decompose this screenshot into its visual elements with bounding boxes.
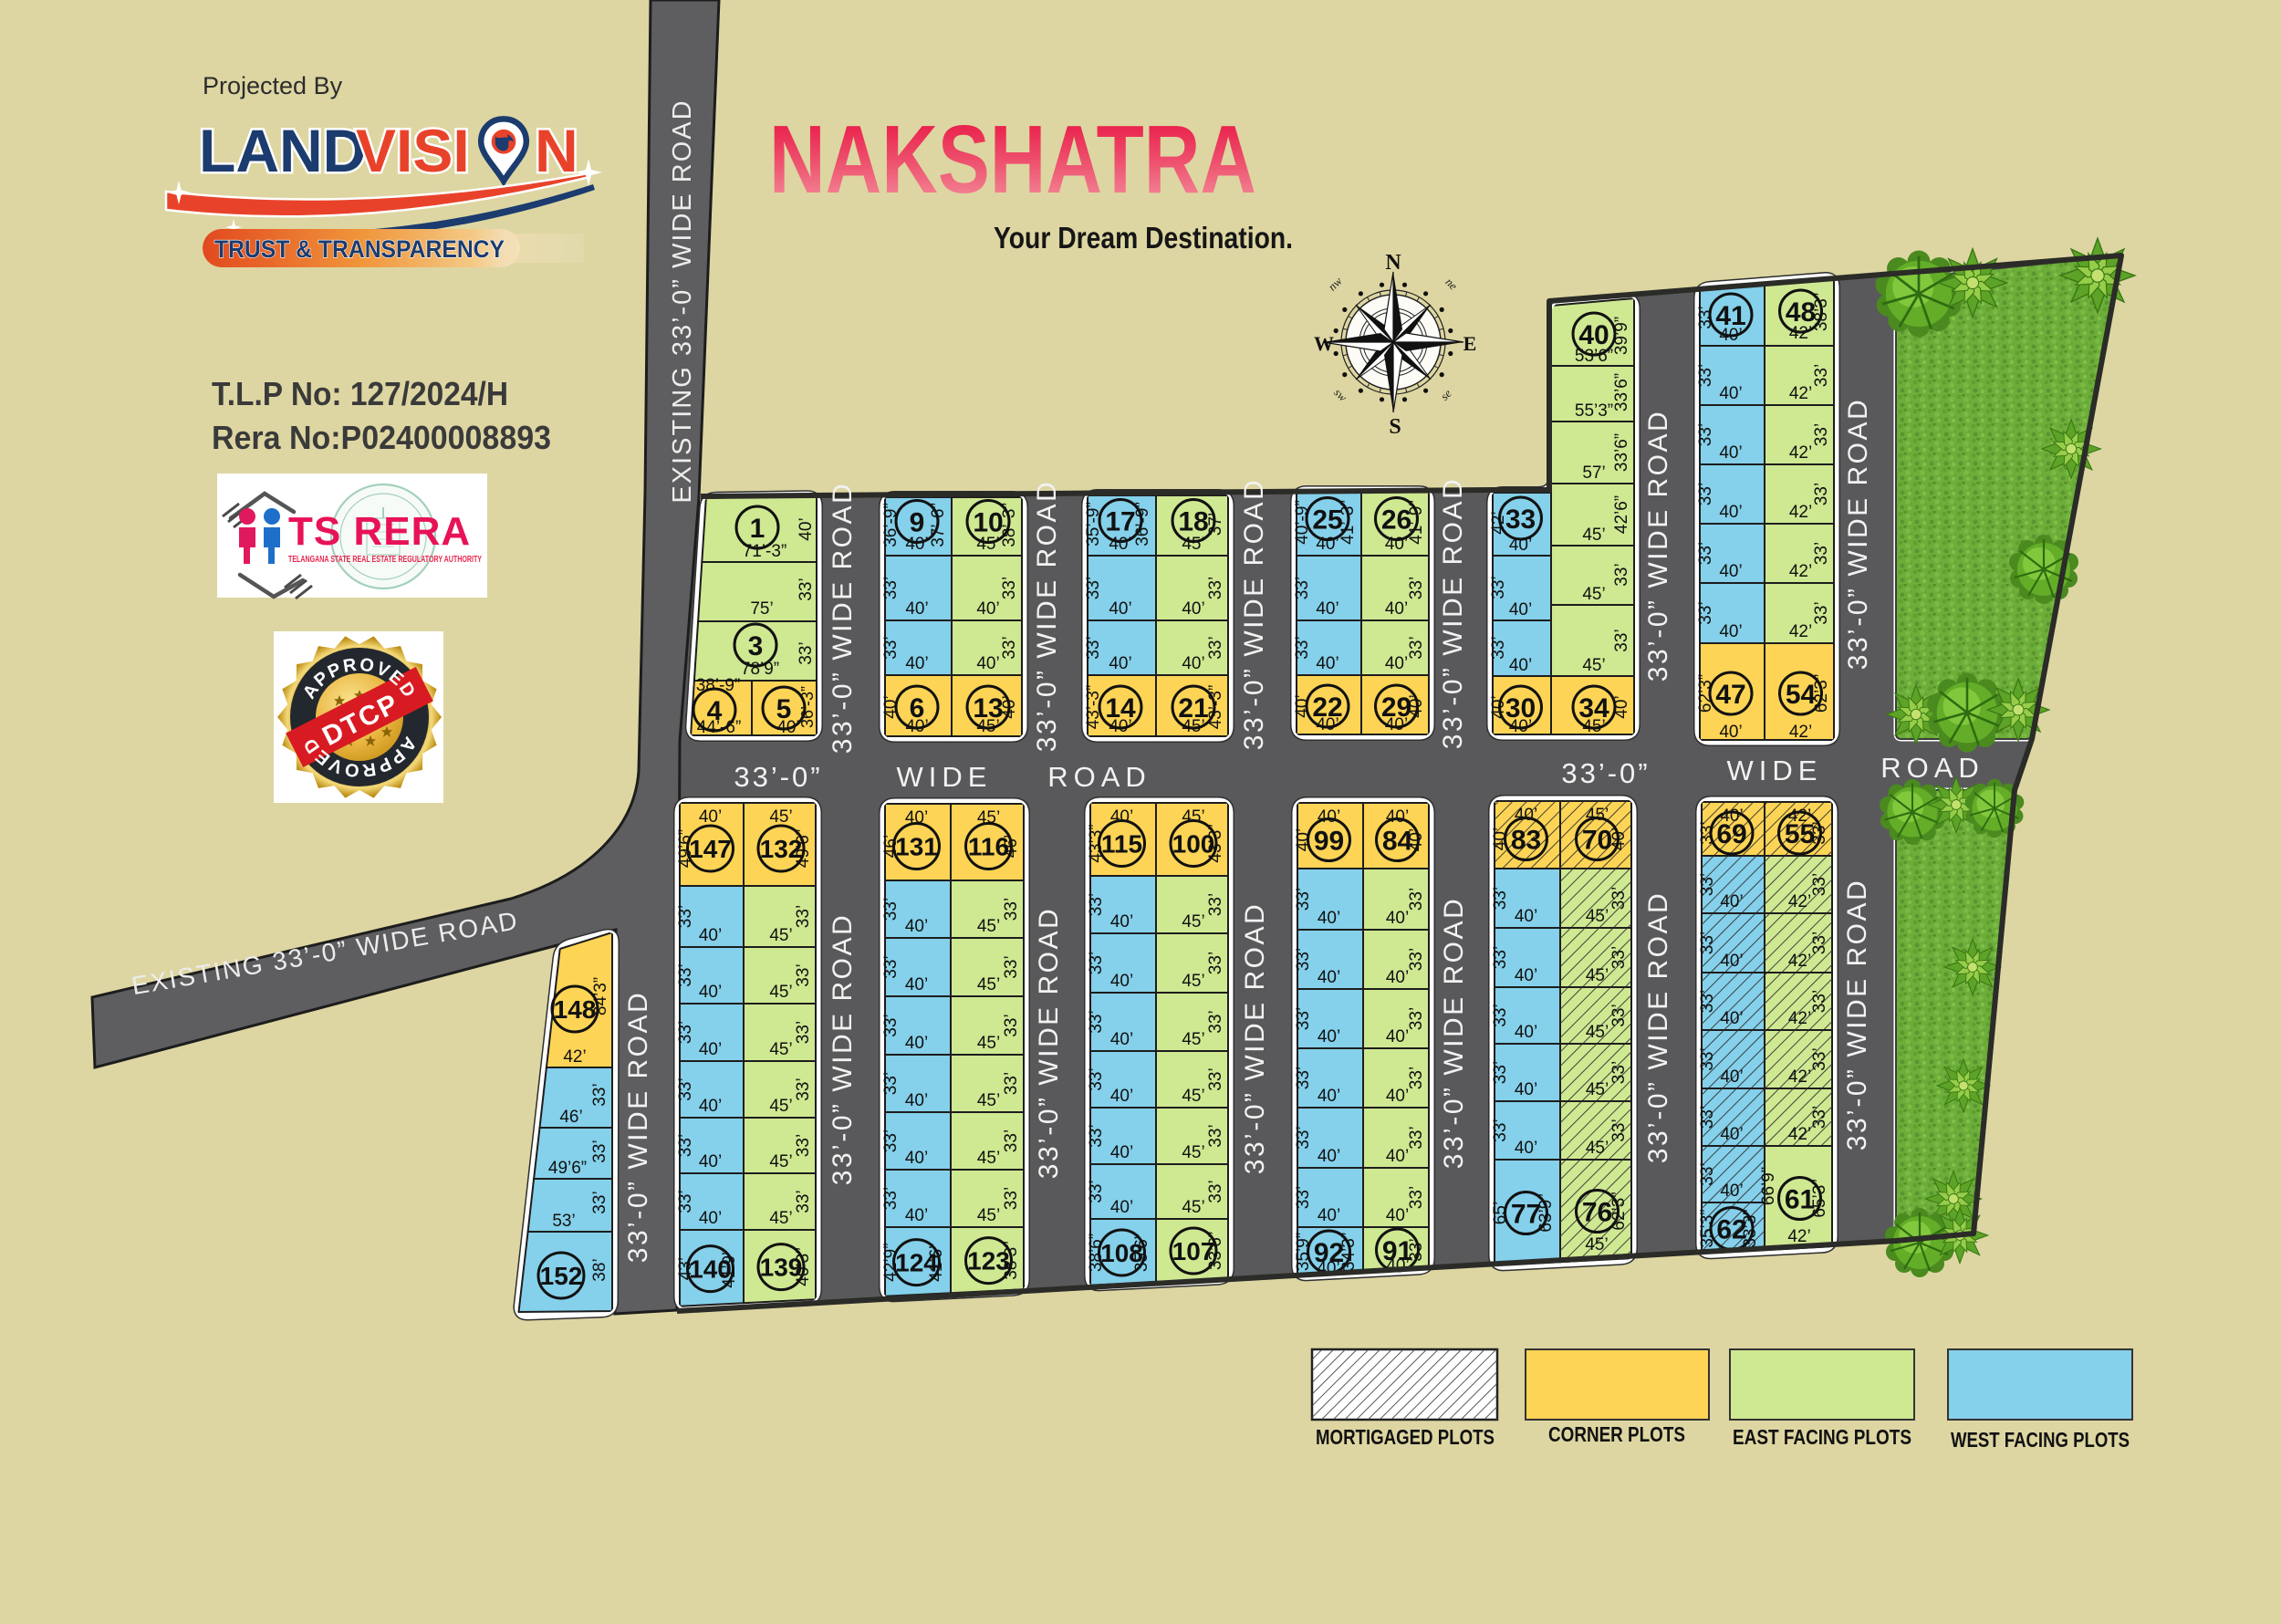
svg-text:45’: 45’ xyxy=(1182,1198,1204,1217)
svg-text:E: E xyxy=(1463,332,1477,355)
svg-text:40’: 40’ xyxy=(1515,1139,1537,1158)
svg-text:40’: 40’ xyxy=(1719,723,1742,742)
svg-text:49’6”: 49’6” xyxy=(548,1159,587,1178)
svg-text:40’: 40’ xyxy=(1110,1087,1133,1106)
svg-text:45’: 45’ xyxy=(1582,585,1605,604)
svg-text:33’: 33’ xyxy=(1698,1106,1717,1129)
svg-text:33’: 33’ xyxy=(590,1191,609,1213)
svg-text:45’: 45’ xyxy=(1586,1080,1609,1099)
svg-text:40’: 40’ xyxy=(699,983,722,1002)
svg-text:18: 18 xyxy=(1178,506,1208,536)
svg-text:39’9”: 39’9” xyxy=(1612,317,1631,355)
svg-text:33’: 33’ xyxy=(1812,364,1831,387)
svg-text:33’: 33’ xyxy=(1696,483,1715,505)
svg-text:33’: 33’ xyxy=(676,1190,695,1213)
svg-text:33’: 33’ xyxy=(1206,1180,1225,1202)
svg-text:84’3”: 84’3” xyxy=(591,977,610,1015)
svg-text:40’: 40’ xyxy=(1720,1125,1743,1144)
svg-text:45’: 45’ xyxy=(769,1209,792,1228)
svg-text:40’: 40’ xyxy=(797,517,816,540)
svg-text:40’: 40’ xyxy=(1110,1198,1133,1217)
svg-text:33’: 33’ xyxy=(1696,423,1715,446)
svg-text:33’: 33’ xyxy=(1489,576,1508,599)
svg-text:1: 1 xyxy=(750,514,766,544)
svg-text:TRUST & TRANSPARENCY: TRUST & TRANSPARENCY xyxy=(214,235,505,263)
svg-text:40’: 40’ xyxy=(1316,535,1338,554)
svg-text:40’: 40’ xyxy=(1110,1143,1133,1162)
svg-text:55’3”: 55’3” xyxy=(1575,401,1613,421)
svg-text:49’6”: 49’6” xyxy=(794,829,813,868)
svg-text:VISI: VISI xyxy=(356,117,470,184)
svg-text:33’: 33’ xyxy=(797,578,816,600)
svg-text:40’: 40’ xyxy=(905,1091,928,1110)
svg-text:33’: 33’ xyxy=(1609,1061,1629,1084)
svg-text:33’-0”: 33’-0” xyxy=(734,761,822,793)
svg-text:33’: 33’ xyxy=(1087,893,1106,916)
svg-text:40’: 40’ xyxy=(1318,1087,1340,1106)
svg-text:40’: 40’ xyxy=(1719,622,1742,641)
svg-text:TELANGANA STATE REAL ESTATE RE: TELANGANA STATE REAL ESTATE REGULATORY A… xyxy=(288,555,482,565)
svg-text:44’-6”: 44’-6” xyxy=(697,718,742,737)
svg-text:40’: 40’ xyxy=(1509,536,1532,555)
svg-text:33’-0” WIDE ROAD: 33’-0” WIDE ROAD xyxy=(1239,478,1269,750)
svg-text:S: S xyxy=(1389,415,1401,439)
svg-text:40’: 40’ xyxy=(1318,807,1340,827)
svg-text:45’: 45’ xyxy=(1182,535,1204,554)
svg-text:45’: 45’ xyxy=(769,807,792,827)
svg-text:40’: 40’ xyxy=(699,926,722,945)
svg-text:33’: 33’ xyxy=(1812,601,1831,624)
svg-text:42’: 42’ xyxy=(1788,1067,1811,1087)
svg-text:33’: 33’ xyxy=(1609,1004,1629,1026)
svg-text:33’: 33’ xyxy=(1087,1124,1106,1147)
svg-text:40’: 40’ xyxy=(1316,599,1338,619)
svg-text:ROAD: ROAD xyxy=(1880,752,1984,784)
svg-text:33’: 33’ xyxy=(1206,893,1225,916)
svg-text:40’: 40’ xyxy=(1491,828,1510,850)
svg-text:33’: 33’ xyxy=(1087,1010,1106,1033)
svg-text:40’: 40’ xyxy=(1318,1027,1340,1046)
svg-text:40’: 40’ xyxy=(1407,694,1426,717)
svg-text:40’: 40’ xyxy=(1515,907,1537,926)
svg-text:40’: 40’ xyxy=(905,599,928,619)
svg-text:36’-9”: 36’-9” xyxy=(881,503,901,547)
svg-text:83: 83 xyxy=(1511,825,1541,855)
svg-text:EAST FACING PLOTS: EAST FACING PLOTS xyxy=(1733,1425,1911,1449)
svg-text:33’: 33’ xyxy=(1294,1007,1313,1030)
svg-text:38’3”: 38’3” xyxy=(1002,1241,1021,1279)
svg-text:42’: 42’ xyxy=(1789,384,1812,403)
svg-text:62’3”: 62’3” xyxy=(1696,674,1715,713)
svg-text:CORNER PLOTS: CORNER PLOTS xyxy=(1548,1422,1685,1446)
svg-text:36’-3”: 36’-3” xyxy=(798,686,817,728)
svg-text:WEST FACING PLOTS: WEST FACING PLOTS xyxy=(1951,1428,2130,1452)
svg-text:40’: 40’ xyxy=(1489,695,1508,718)
svg-text:33’: 33’ xyxy=(676,1021,695,1044)
svg-text:N: N xyxy=(1385,251,1401,275)
svg-text:69: 69 xyxy=(1716,819,1746,849)
svg-text:33’: 33’ xyxy=(590,1140,609,1162)
svg-text:40’: 40’ xyxy=(1293,694,1312,717)
svg-text:33’: 33’ xyxy=(1609,946,1629,969)
svg-text:40’: 40’ xyxy=(699,1040,722,1059)
svg-text:42’: 42’ xyxy=(1789,443,1812,463)
svg-text:33’: 33’ xyxy=(1407,1126,1426,1149)
svg-text:40’: 40’ xyxy=(1385,654,1408,673)
svg-text:33’: 33’ xyxy=(1491,887,1510,910)
svg-text:33’: 33’ xyxy=(1491,1119,1510,1141)
svg-text:45’: 45’ xyxy=(1182,972,1204,991)
svg-text:33’: 33’ xyxy=(1698,873,1717,896)
svg-text:78’9”: 78’9” xyxy=(741,660,779,679)
svg-text:40’: 40’ xyxy=(1515,806,1537,825)
svg-text:33’: 33’ xyxy=(881,1187,901,1210)
svg-text:33’: 33’ xyxy=(1002,1130,1021,1152)
svg-text:33’: 33’ xyxy=(1293,577,1312,599)
svg-text:33’: 33’ xyxy=(1087,1180,1106,1202)
svg-text:33’: 33’ xyxy=(1002,898,1021,921)
svg-text:45’: 45’ xyxy=(769,1040,792,1059)
svg-text:40’: 40’ xyxy=(1720,1009,1743,1028)
svg-text:45’: 45’ xyxy=(1586,966,1609,985)
svg-text:40’: 40’ xyxy=(1385,715,1408,734)
svg-text:NAKSHATRA: NAKSHATRA xyxy=(769,106,1256,213)
svg-text:33: 33 xyxy=(1505,505,1536,535)
svg-text:42’: 42’ xyxy=(1789,723,1812,742)
svg-text:38’-3”: 38’-3” xyxy=(1000,503,1019,547)
svg-text:40’: 40’ xyxy=(905,1034,928,1053)
svg-text:33’: 33’ xyxy=(1810,990,1829,1013)
svg-text:45’: 45’ xyxy=(1586,1139,1609,1158)
svg-text:147: 147 xyxy=(689,835,732,863)
svg-text:45’: 45’ xyxy=(977,1091,1000,1110)
svg-text:33’: 33’ xyxy=(1407,636,1426,659)
svg-text:33’-0” WIDE ROAD: 33’-0” WIDE ROAD xyxy=(1439,897,1469,1169)
svg-text:33’: 33’ xyxy=(881,636,901,659)
svg-text:40’: 40’ xyxy=(1719,443,1742,463)
svg-text:40’: 40’ xyxy=(1109,717,1131,736)
svg-text:33’: 33’ xyxy=(881,1014,901,1036)
svg-text:33’: 33’ xyxy=(794,1134,813,1157)
svg-text:40’: 40’ xyxy=(1509,717,1532,736)
svg-text:40’: 40’ xyxy=(905,535,928,554)
svg-text:40’: 40’ xyxy=(1109,535,1131,554)
svg-text:33’: 33’ xyxy=(1407,577,1426,599)
svg-text:33’: 33’ xyxy=(1000,636,1019,659)
svg-text:40’: 40’ xyxy=(1720,892,1743,911)
svg-text:38’6”: 38’6” xyxy=(1087,1234,1106,1272)
svg-text:33’: 33’ xyxy=(1810,1106,1829,1129)
svg-text:40’: 40’ xyxy=(1385,599,1408,619)
svg-text:43’: 43’ xyxy=(676,1257,695,1280)
svg-text:T.L.P No: 127/2024/H: T.L.P No: 127/2024/H xyxy=(212,375,508,412)
svg-text:33’: 33’ xyxy=(794,1190,813,1213)
svg-text:40’: 40’ xyxy=(1720,1182,1743,1201)
svg-text:Projected By: Projected By xyxy=(203,72,343,99)
svg-text:40’: 40’ xyxy=(1109,654,1131,673)
svg-text:10: 10 xyxy=(973,507,1003,537)
svg-text:40’: 40’ xyxy=(1386,1147,1409,1166)
svg-text:152: 152 xyxy=(540,1262,583,1290)
svg-text:40’: 40’ xyxy=(1182,599,1204,619)
svg-text:40’: 40’ xyxy=(1720,1067,1743,1087)
svg-text:43’-3”: 43’-3” xyxy=(1084,685,1103,730)
svg-text:45’: 45’ xyxy=(976,717,999,736)
svg-text:W: W xyxy=(1314,332,1334,355)
svg-text:33’: 33’ xyxy=(1407,1007,1426,1030)
svg-text:TS RERA: TS RERA xyxy=(288,509,471,554)
svg-text:42’: 42’ xyxy=(1489,511,1508,534)
svg-text:33’-0” WIDE ROAD: 33’-0” WIDE ROAD xyxy=(623,991,653,1263)
svg-text:40’: 40’ xyxy=(1515,966,1537,985)
svg-text:42’: 42’ xyxy=(1788,892,1811,911)
svg-text:45’: 45’ xyxy=(977,1034,1000,1053)
svg-text:40’: 40’ xyxy=(1609,828,1629,850)
svg-text:40’: 40’ xyxy=(1386,909,1409,928)
svg-text:33’: 33’ xyxy=(1491,1061,1510,1084)
svg-text:40’: 40’ xyxy=(1385,535,1408,554)
svg-text:42’: 42’ xyxy=(563,1047,586,1067)
svg-text:40’3”: 40’3” xyxy=(794,1247,813,1286)
svg-text:40’: 40’ xyxy=(1719,384,1742,403)
svg-text:40’: 40’ xyxy=(699,1152,722,1171)
svg-text:33’: 33’ xyxy=(1812,483,1831,505)
svg-text:33’-0” WIDE ROAD: 33’-0” WIDE ROAD xyxy=(1034,907,1064,1179)
svg-text:33’: 33’ xyxy=(676,905,695,928)
svg-text:33’: 33’ xyxy=(1407,1186,1426,1209)
svg-text:33’: 33’ xyxy=(1810,821,1829,844)
svg-text:40’: 40’ xyxy=(1386,1027,1409,1046)
svg-text:33’: 33’ xyxy=(1294,1067,1313,1089)
svg-text:40’: 40’ xyxy=(1316,654,1338,673)
svg-text:33’-0” WIDE ROAD: 33’-0” WIDE ROAD xyxy=(1438,477,1468,749)
svg-text:42’: 42’ xyxy=(1789,503,1812,522)
svg-text:42’: 42’ xyxy=(1788,952,1811,971)
svg-text:35’9”: 35’9” xyxy=(1294,1233,1313,1271)
svg-text:40’: 40’ xyxy=(699,1209,722,1228)
svg-text:45’: 45’ xyxy=(1182,912,1204,932)
svg-text:40’: 40’ xyxy=(905,654,928,673)
svg-text:33’: 33’ xyxy=(1696,542,1715,565)
svg-text:45’: 45’ xyxy=(977,917,1000,936)
svg-text:33’: 33’ xyxy=(1294,888,1313,911)
svg-text:Your Dream Destination.: Your Dream Destination. xyxy=(994,221,1293,255)
svg-text:40’: 40’ xyxy=(1509,656,1532,675)
svg-text:33’-0” WIDE ROAD: 33’-0” WIDE ROAD xyxy=(828,482,858,754)
svg-text:33’: 33’ xyxy=(881,955,901,978)
svg-text:33’: 33’ xyxy=(1612,563,1631,586)
svg-text:57’: 57’ xyxy=(1582,463,1605,483)
svg-text:38’-9”: 38’-9” xyxy=(696,676,741,695)
svg-text:148: 148 xyxy=(554,995,597,1024)
svg-text:33’: 33’ xyxy=(1696,306,1715,328)
svg-text:45’: 45’ xyxy=(769,983,792,1002)
svg-text:33’: 33’ xyxy=(1696,601,1715,624)
svg-text:45’: 45’ xyxy=(1182,1087,1204,1106)
svg-text:33’-0” WIDE ROAD: 33’-0” WIDE ROAD xyxy=(828,913,858,1185)
svg-text:33’: 33’ xyxy=(1812,423,1831,446)
svg-text:46’: 46’ xyxy=(1002,835,1021,858)
svg-text:41’-9”: 41’-9” xyxy=(1407,500,1426,545)
svg-text:40’-9”: 40’-9” xyxy=(1293,500,1312,545)
svg-text:42’: 42’ xyxy=(1788,1125,1811,1144)
svg-text:33’: 33’ xyxy=(1491,1004,1510,1026)
svg-text:33’3”: 33’3” xyxy=(1741,1209,1760,1247)
svg-text:40: 40 xyxy=(1578,320,1609,350)
svg-text:45’: 45’ xyxy=(977,1149,1000,1168)
svg-text:43’-3”: 43’-3” xyxy=(1206,685,1225,730)
svg-text:43’3”: 43’3” xyxy=(1087,824,1106,862)
svg-text:33’: 33’ xyxy=(1810,1047,1829,1070)
svg-text:33’: 33’ xyxy=(1294,948,1313,971)
svg-text:40’: 40’ xyxy=(976,654,999,673)
svg-text:66’9”: 66’9” xyxy=(1759,1167,1778,1205)
svg-text:37’-6”: 37’-6” xyxy=(929,503,948,547)
svg-text:42’: 42’ xyxy=(1789,622,1812,641)
svg-text:40’: 40’ xyxy=(1110,1030,1133,1049)
svg-text:33’: 33’ xyxy=(1002,955,1021,978)
svg-text:45’: 45’ xyxy=(1586,1023,1609,1042)
svg-text:40’: 40’ xyxy=(905,975,928,994)
svg-text:45’: 45’ xyxy=(1582,717,1605,736)
svg-text:33’-0” WIDE ROAD: 33’-0” WIDE ROAD xyxy=(1240,902,1270,1174)
svg-text:33’: 33’ xyxy=(1696,364,1715,387)
svg-text:33’: 33’ xyxy=(1206,1124,1225,1147)
svg-text:63’9”: 63’9” xyxy=(1536,1193,1556,1232)
svg-text:33’-0” WIDE ROAD: 33’-0” WIDE ROAD xyxy=(1643,891,1673,1163)
svg-text:45’: 45’ xyxy=(976,535,999,554)
svg-text:33’: 33’ xyxy=(1609,887,1629,910)
svg-text:62’3”: 62’3” xyxy=(1812,674,1831,713)
svg-text:40’: 40’ xyxy=(905,717,928,736)
svg-text:33’: 33’ xyxy=(1002,1014,1021,1036)
svg-text:33’: 33’ xyxy=(1087,1067,1106,1090)
svg-text:42’: 42’ xyxy=(1789,562,1812,581)
svg-text:99: 99 xyxy=(1314,826,1344,856)
svg-text:33’: 33’ xyxy=(794,905,813,928)
svg-text:45’: 45’ xyxy=(769,1152,792,1171)
svg-text:40’: 40’ xyxy=(1000,695,1019,718)
svg-text:33’: 33’ xyxy=(590,1083,609,1106)
svg-text:40’: 40’ xyxy=(1110,912,1133,932)
svg-text:45’: 45’ xyxy=(769,1097,792,1116)
svg-text:33’: 33’ xyxy=(794,1021,813,1044)
svg-text:33’: 33’ xyxy=(1206,577,1225,599)
svg-text:45’: 45’ xyxy=(1585,1235,1608,1254)
svg-text:33’: 33’ xyxy=(1002,1187,1021,1210)
svg-text:65’3”: 65’3” xyxy=(1810,1179,1829,1217)
svg-text:33’: 33’ xyxy=(881,1072,901,1095)
svg-text:33’6”: 33’6” xyxy=(1612,433,1631,472)
svg-text:45’: 45’ xyxy=(1182,807,1204,827)
svg-text:70: 70 xyxy=(1582,825,1612,855)
svg-text:33’: 33’ xyxy=(1087,952,1106,974)
svg-text:WIDE: WIDE xyxy=(1727,755,1823,786)
svg-text:40’: 40’ xyxy=(699,1097,722,1116)
svg-text:40’: 40’ xyxy=(1109,599,1131,619)
svg-text:45’: 45’ xyxy=(1586,907,1609,926)
svg-text:33’: 33’ xyxy=(1002,1072,1021,1095)
svg-text:33’6”: 33’6” xyxy=(1612,373,1631,411)
svg-text:33’: 33’ xyxy=(1206,952,1225,974)
svg-text:33’: 33’ xyxy=(1084,636,1103,659)
svg-text:33’: 33’ xyxy=(881,898,901,921)
svg-text:33’: 33’ xyxy=(1810,873,1829,896)
svg-text:33’: 33’ xyxy=(794,1077,813,1100)
svg-text:ROAD: ROAD xyxy=(1047,761,1151,793)
svg-text:MORTIGAGED PLOTS: MORTIGAGED PLOTS xyxy=(1316,1425,1495,1449)
svg-text:33’: 33’ xyxy=(676,963,695,986)
svg-text:33’: 33’ xyxy=(1698,932,1717,954)
svg-text:33’-0” WIDE ROAD: 33’-0” WIDE ROAD xyxy=(1843,398,1873,670)
svg-text:38’: 38’ xyxy=(590,1258,609,1281)
svg-text:33’: 33’ xyxy=(1206,1067,1225,1090)
svg-text:33’: 33’ xyxy=(1293,636,1312,659)
svg-text:46’: 46’ xyxy=(559,1108,582,1127)
svg-text:65’: 65’ xyxy=(1491,1202,1510,1224)
svg-text:3: 3 xyxy=(748,631,764,661)
svg-text:WIDE: WIDE xyxy=(897,761,993,793)
svg-text:37’: 37’ xyxy=(1206,513,1225,536)
svg-text:45’: 45’ xyxy=(1582,656,1605,675)
svg-text:Rera No:P02400008893: Rera No:P02400008893 xyxy=(212,419,551,456)
svg-text:45’: 45’ xyxy=(977,975,1000,994)
svg-text:33’: 33’ xyxy=(881,577,901,599)
svg-text:EXISTING 33’-0” WIDE ROAD: EXISTING 33’-0” WIDE ROAD xyxy=(668,99,697,503)
svg-text:33’: 33’ xyxy=(1407,1067,1426,1089)
svg-text:33’: 33’ xyxy=(1698,1162,1717,1185)
svg-text:40’: 40’ xyxy=(1110,807,1133,827)
svg-text:33’: 33’ xyxy=(676,1077,695,1100)
svg-text:33’: 33’ xyxy=(1491,946,1510,969)
svg-text:42’: 42’ xyxy=(1789,324,1812,343)
svg-text:75’: 75’ xyxy=(750,599,773,619)
svg-text:40’: 40’ xyxy=(905,1206,928,1225)
svg-text:40’: 40’ xyxy=(1386,807,1409,827)
svg-text:33’: 33’ xyxy=(1206,1010,1225,1033)
svg-text:40’: 40’ xyxy=(1318,1206,1340,1225)
svg-text:40’: 40’ xyxy=(976,599,999,619)
svg-text:33’-0” WIDE ROAD: 33’-0” WIDE ROAD xyxy=(1842,879,1872,1150)
svg-text:40’: 40’ xyxy=(1719,326,1742,345)
svg-text:41’6”: 41’6” xyxy=(927,1243,946,1281)
svg-text:33’-0” WIDE ROAD: 33’-0” WIDE ROAD xyxy=(1643,410,1673,682)
svg-text:49’6”: 49’6” xyxy=(676,829,695,868)
svg-text:36’-9”: 36’-9” xyxy=(1133,502,1152,547)
svg-text:40’: 40’ xyxy=(699,807,722,827)
svg-text:9: 9 xyxy=(910,507,925,537)
svg-text:34’3”: 34’3” xyxy=(1339,1233,1359,1271)
svg-text:33’: 33’ xyxy=(1294,1186,1313,1209)
svg-text:40’: 40’ xyxy=(1316,715,1338,734)
svg-text:40’: 40’ xyxy=(1386,1206,1409,1225)
svg-text:40’: 40’ xyxy=(1386,1087,1409,1106)
svg-text:38’3”: 38’3” xyxy=(1812,293,1831,331)
svg-text:45’: 45’ xyxy=(977,1206,1000,1225)
svg-text:40’: 40’ xyxy=(1515,1080,1537,1099)
svg-text:40’: 40’ xyxy=(1294,828,1313,851)
svg-text:33’-0”: 33’-0” xyxy=(1561,757,1650,789)
svg-text:33’: 33’ xyxy=(1206,636,1225,659)
svg-text:33’: 33’ xyxy=(1698,1047,1717,1070)
svg-text:40’: 40’ xyxy=(905,917,928,936)
svg-text:33’: 33’ xyxy=(794,963,813,986)
svg-text:33’: 33’ xyxy=(881,1130,901,1152)
svg-text:33’: 33’ xyxy=(676,1134,695,1157)
svg-text:33’6”: 33’6” xyxy=(1206,1232,1225,1270)
svg-text:115: 115 xyxy=(1101,830,1142,859)
svg-text:131: 131 xyxy=(895,833,938,861)
